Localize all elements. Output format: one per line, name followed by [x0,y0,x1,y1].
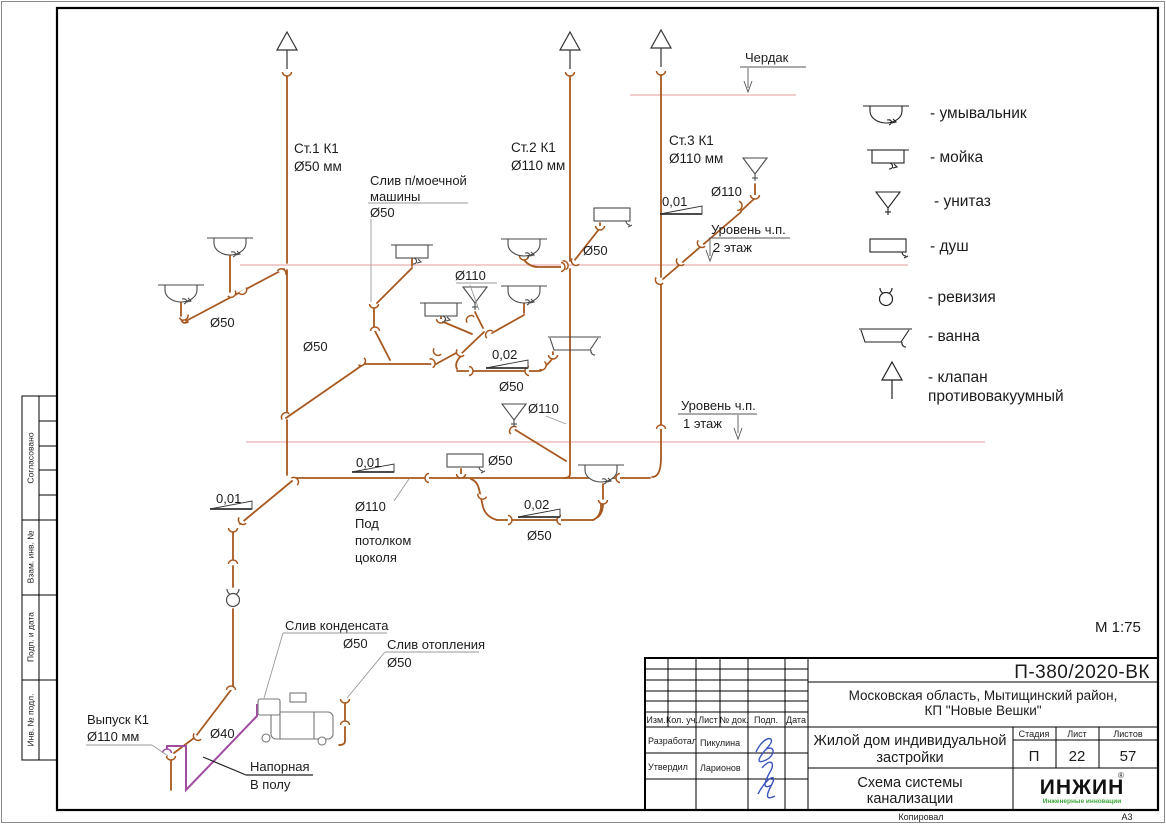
toilet-icon [743,158,767,181]
title-block: Изм. Кол. уч. Лист № док. Подп. Дата Раз… [645,658,1158,810]
level1-label: Уровень ч.п. [681,398,756,413]
pressure-pipe-socket [163,749,172,753]
project-address-line1: Московская область, Мытищинский район, [849,688,1118,703]
sink-icon [867,150,909,169]
bath-icon [859,329,912,347]
level1-floor: 1 этаж [683,416,722,431]
fixtures [158,30,767,607]
copied-label: Копировал [898,812,943,822]
margin-label-sign-date: Подп. и дата [26,612,36,662]
object-name-line1: Жилой дом индивидуальной [813,733,1006,749]
attic-label: Чердак [745,50,789,65]
sewerage-scheme-canvas: Согласовано Взам. инв. № Подп. и дата Ин… [0,0,1166,824]
name-developed: Пикулина [700,738,740,748]
sewage-pump [258,693,333,745]
dishwasher-drain-label2: машины [370,189,420,204]
dia-label: Ø50 [488,453,513,468]
washbasin-icon [158,285,204,304]
dia-label: Ø50 [527,528,552,543]
sheet-value: 22 [1069,748,1086,765]
dishwasher-drain-dia: Ø50 [370,205,395,220]
footer-strip: Копировал А3 [898,812,1132,822]
scale-label: М 1:75 [1095,619,1141,636]
col-sign: Подп. [754,715,778,725]
outlet-label: Выпуск К1 [87,712,149,727]
riser1-dia: Ø50 мм [294,159,342,174]
riser2-dia: Ø110 мм [511,158,565,173]
format-label: А3 [1121,812,1132,822]
sheet-header: Лист [1067,729,1087,739]
washbasin-icon [501,239,547,258]
bath-icon [548,337,601,355]
shower-icon [447,454,485,473]
col-doc: № док. [720,715,749,725]
legend-item-valve: - клапан [928,369,988,386]
dia-label: Ø40 [210,726,235,741]
ceiling-pipe-label1: Под [355,516,379,531]
legend-item-sink: - мойка [930,149,984,166]
slope-label: 0,01 [356,455,381,470]
level2-floor: 2 этаж [713,240,752,255]
role-developed: Разработал [648,736,697,746]
pressure-label: Напорная [250,759,310,774]
col-izm: Изм. [646,715,665,725]
name-approved: Ларионов [700,763,741,773]
floor-level-lines [240,95,985,442]
riser3-label: Ст.3 К1 [669,133,714,148]
heating-drain-dia: Ø50 [387,655,412,670]
pressure-label2: В полу [250,777,291,792]
logo-subtitle: Инженерные инновации [1043,798,1121,805]
riser3-dia: Ø110 мм [669,151,723,166]
slope-label: 0,02 [524,497,549,512]
dishwasher-drain-label: Слив п/моечной [370,173,467,188]
shower-icon [870,239,908,258]
legend-item-bath: - ванна [928,328,980,345]
legend-item-valve-line2: противовакуумный [928,388,1064,405]
sheets-value: 57 [1120,748,1137,765]
level2-label: Уровень ч.п. [711,222,786,237]
ceiling-pipe-label2: потолком [355,533,411,548]
company-logo: ИНЖИН ® Инженерные инновации [1040,771,1125,805]
heating-drain-label: Слив отопления [387,637,485,652]
signature-scribbles [756,739,775,798]
washbasin-icon [207,238,253,257]
project-address-line2: КП "Новые Вешки" [924,703,1041,718]
dia-label: Ø50 [303,339,328,354]
washbasin-icon [501,286,547,305]
condensate-drain-label: Слив конденсата [285,618,389,633]
dia-label: Ø50 [499,379,524,394]
revision-icon [227,589,240,607]
logo-registered-icon: ® [1118,771,1124,780]
col-kol: Кол. уч. [666,715,698,725]
revision-icon [880,288,893,306]
legend-item-toilet: - унитаз [934,193,991,210]
outlet-dia: Ø110 мм [87,729,139,744]
sheets-header: Листов [1113,729,1142,739]
riser2-label: Ст.2 К1 [511,140,556,155]
vacuum-valve-icon [882,362,902,399]
left-margin-strip: Согласовано Взам. инв. № Подп. и дата Ин… [22,396,57,760]
condensate-drain-dia: Ø50 [343,636,368,651]
slope-label: 0,01 [216,491,241,506]
role-approved: Утвердил [648,762,688,772]
col-list: Лист [698,715,718,725]
col-date: Дата [786,715,806,725]
margin-label-replace-inv: Взам. инв. № [26,531,36,584]
leader-lines [86,203,566,775]
toilet-icon [876,192,900,215]
toilet-icon [502,404,526,427]
drawing-title-line2: канализации [867,791,954,807]
legend: - умывальник - мойка - унитаз - душ - ре… [859,105,1064,405]
legend-item-revision: - ревизия [928,289,996,306]
ceiling-pipe-dia: Ø110 [355,499,386,514]
legend-item-washbasin: - умывальник [930,105,1027,122]
legend-item-shower: - душ [930,238,969,255]
slope-label: 0,02 [492,347,517,362]
object-name-line2: застройки [876,750,943,766]
slope-label: 0,01 [662,194,687,209]
dia-label: Ø110 [528,401,559,416]
doc-number: П-380/2020-ВК [1014,662,1150,683]
vacuum-valve-icon [560,32,580,69]
ceiling-pipe-label3: цоколя [355,550,397,565]
vacuum-valve-icon [651,30,671,67]
drawing-title-line1: Схема системы [857,775,962,791]
dia-label: Ø50 [210,315,235,330]
stage-header: Стадия [1019,729,1050,739]
vacuum-valve-icon [277,32,297,69]
stage-value: П [1029,748,1040,765]
dia-label: Ø110 [455,268,486,283]
drawing-sheet: Согласовано Взам. инв. № Подп. и дата Ин… [0,0,1166,824]
margin-label-agreed: Согласовано [26,432,36,483]
logo-text: ИНЖИН [1040,776,1125,799]
riser1-label: Ст.1 К1 [294,141,339,156]
margin-label-inv-orig: Инв. № подл. [26,694,36,747]
washbasin-icon [863,106,909,125]
dia-label: Ø110 [711,184,742,199]
dia-label: Ø50 [583,243,608,258]
